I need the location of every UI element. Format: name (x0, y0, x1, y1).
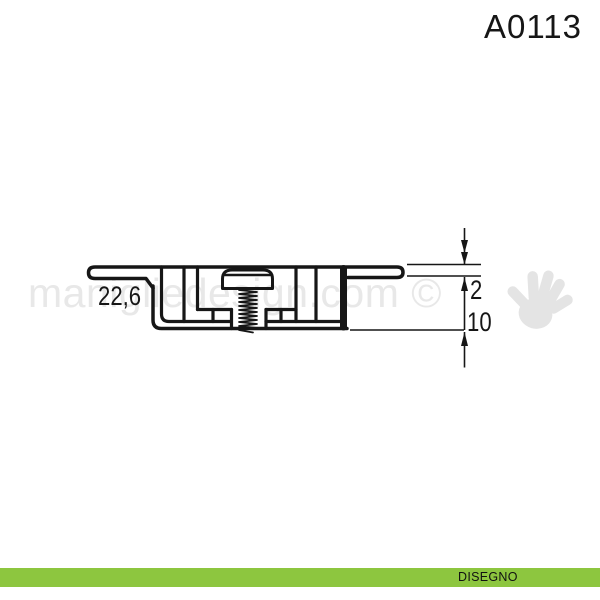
screw-head (223, 270, 273, 289)
footer-bar: DISEGNO (0, 568, 600, 587)
dimension-extension-lines (350, 228, 481, 368)
dimension-label-body-height: 10 (467, 309, 492, 336)
profile-cross-section-drawing (0, 0, 600, 600)
dimension-label-flange-thickness: 2 (470, 277, 482, 304)
screw-thread (239, 290, 257, 333)
dimension-label-flange-width: 22,6 (98, 283, 141, 310)
footer-section-label: DISEGNO (458, 568, 518, 587)
drawing-page: { "page": { "title": "A0113" }, "waterma… (0, 0, 600, 600)
